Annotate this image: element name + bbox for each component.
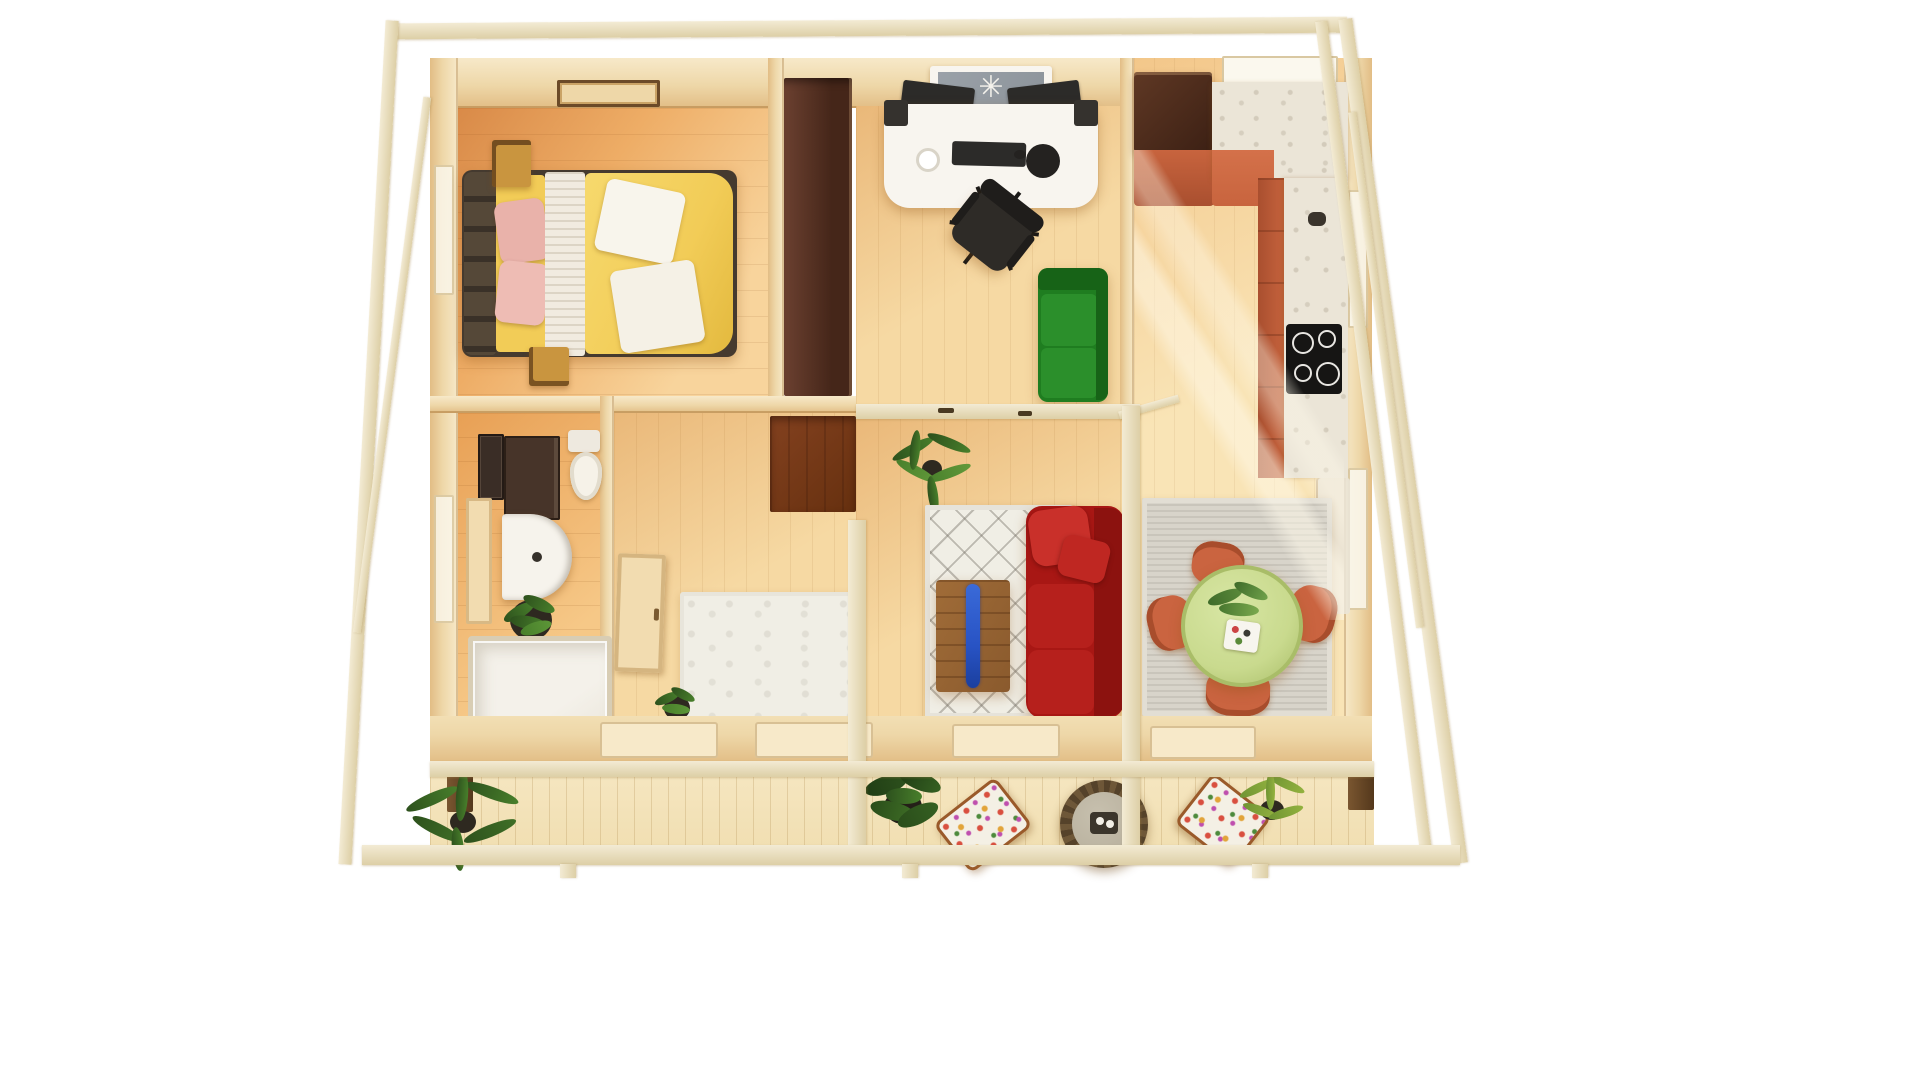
toilet-bowl xyxy=(570,452,602,500)
toilet xyxy=(566,430,602,502)
sofa-cushion xyxy=(1028,650,1094,714)
dining-table xyxy=(1181,565,1303,687)
tray-item xyxy=(1243,629,1251,637)
ceiling-fan-icon: ✳ xyxy=(978,73,1003,103)
epoxy-river xyxy=(966,584,980,688)
front-post-left xyxy=(848,520,866,850)
sink-vanity xyxy=(502,514,572,600)
frame-bottom-beam xyxy=(362,845,1460,865)
palm-plant xyxy=(896,432,968,506)
bathroom-window xyxy=(434,495,454,623)
door-hinge xyxy=(938,408,954,413)
living-room xyxy=(856,419,1122,717)
bedroom-right-wall xyxy=(768,58,784,396)
door-handle xyxy=(654,608,659,620)
fridge-cabinet xyxy=(1134,72,1212,152)
bedroom xyxy=(458,108,768,397)
closet-dark-floor xyxy=(770,416,856,512)
frame-top-beam xyxy=(395,17,1347,40)
epoxy-coffee-table xyxy=(936,580,1010,692)
tray-item xyxy=(1235,637,1243,645)
sofa-cushion xyxy=(1041,348,1097,398)
bathroom xyxy=(458,413,600,717)
floorplan-render: ✳ xyxy=(0,0,1920,1080)
bathroom-door-leaf xyxy=(466,498,492,624)
terracotta-counter xyxy=(1134,150,1214,206)
office xyxy=(856,106,1120,404)
hall-door-leaf xyxy=(614,553,666,673)
burner xyxy=(1316,362,1340,386)
burner xyxy=(1318,330,1336,348)
front-post-right xyxy=(1122,406,1140,850)
frame-post-stub xyxy=(560,864,576,878)
toilet-tank xyxy=(568,430,600,452)
terrace-door-panel xyxy=(1150,726,1256,759)
headboard xyxy=(464,172,496,355)
serving-tray xyxy=(1223,619,1261,653)
cooktop xyxy=(1286,324,1342,394)
sofa-backrest xyxy=(1096,272,1108,400)
door-hinge xyxy=(1018,411,1032,416)
speaker xyxy=(884,100,908,126)
mouse-pad xyxy=(1026,144,1060,178)
terrace-bush-plant xyxy=(864,768,942,848)
cup xyxy=(1106,820,1114,828)
sink-tap xyxy=(1308,212,1326,226)
bed xyxy=(462,170,737,357)
burner xyxy=(1292,332,1314,354)
hallway xyxy=(614,413,856,717)
frame-post-stub xyxy=(1252,864,1268,878)
nightstand xyxy=(492,140,531,187)
speaker xyxy=(1074,100,1098,126)
dining-side-window xyxy=(1348,468,1368,610)
office-kitchen-wall xyxy=(1120,58,1134,408)
bedroom-window xyxy=(434,165,454,295)
sofa-cushion xyxy=(1041,294,1097,346)
frame-left-beam xyxy=(338,20,398,864)
terrace-door-panel xyxy=(600,722,718,758)
red-sofa xyxy=(1026,506,1124,718)
frame-left-brace xyxy=(353,97,431,633)
terrace-door-panel xyxy=(952,724,1060,758)
ceiling-vent xyxy=(557,80,660,107)
vanity-cabinet xyxy=(504,436,560,520)
sofa-cushion xyxy=(1028,584,1094,648)
sofa-backrest xyxy=(1094,508,1124,716)
open-frame-beam xyxy=(856,404,1140,419)
mug xyxy=(916,148,940,172)
wardrobe xyxy=(784,78,852,396)
cup xyxy=(1096,817,1104,825)
tray-item xyxy=(1231,626,1239,634)
terrace-top-beam xyxy=(430,761,1374,777)
mouse xyxy=(1014,150,1026,159)
terracotta-cabinet-column xyxy=(1258,178,1286,478)
terrace-leafy-plant xyxy=(1240,774,1302,842)
pink-pillow xyxy=(493,197,551,265)
hall-rug xyxy=(680,592,858,724)
white-blanket xyxy=(609,259,706,354)
burner xyxy=(1294,364,1312,382)
mirror-cabinet xyxy=(478,434,504,500)
mid-wall xyxy=(430,396,856,413)
nightstand xyxy=(529,347,569,386)
pink-pillow xyxy=(494,260,550,327)
white-throw xyxy=(545,172,585,356)
faucet xyxy=(532,552,542,562)
frame-post-stub xyxy=(902,864,918,878)
green-sofa xyxy=(1038,268,1108,402)
